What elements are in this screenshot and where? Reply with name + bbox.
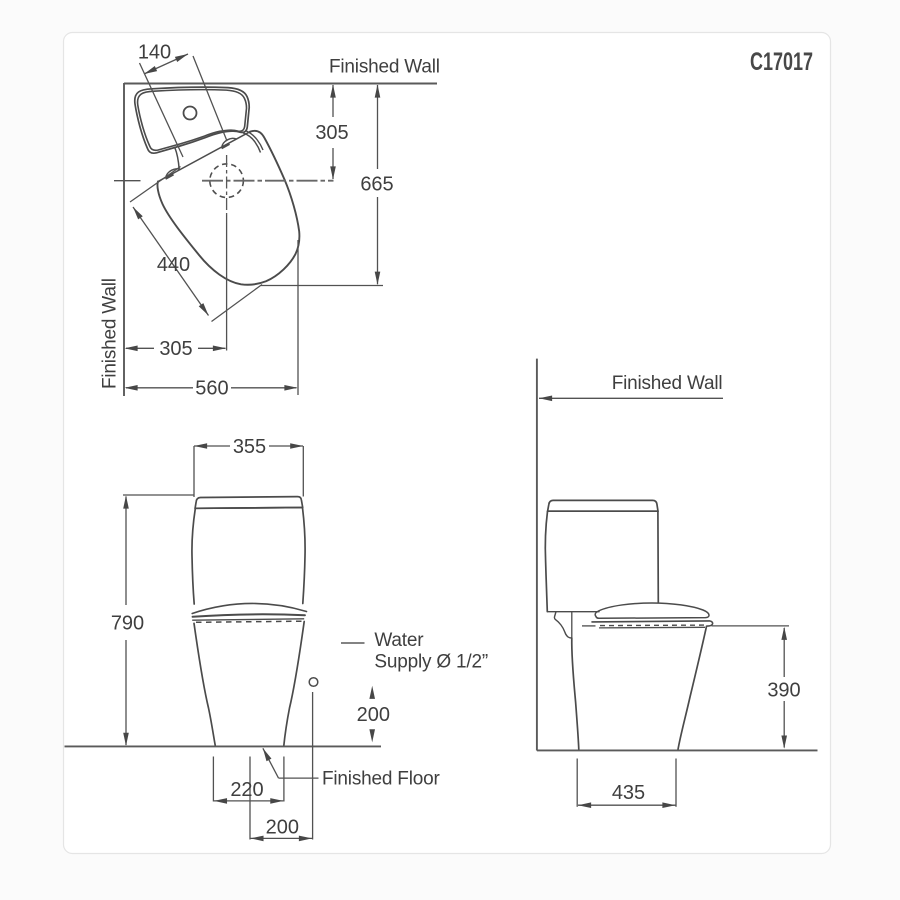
- svg-text:Finished Floor: Finished Floor: [322, 769, 440, 790]
- svg-text:Supply Ø 1/2”: Supply Ø 1/2”: [374, 652, 488, 673]
- svg-text:220: 220: [230, 779, 263, 801]
- svg-text:435: 435: [612, 782, 645, 804]
- svg-text:390: 390: [767, 680, 800, 702]
- svg-text:C17017: C17017: [750, 47, 813, 76]
- svg-text:200: 200: [357, 704, 390, 726]
- svg-text:305: 305: [159, 338, 192, 360]
- svg-text:560: 560: [195, 377, 228, 399]
- svg-text:355: 355: [233, 436, 266, 458]
- svg-text:140: 140: [138, 42, 171, 64]
- svg-text:Finished Wall: Finished Wall: [100, 278, 121, 389]
- svg-text:305: 305: [315, 122, 348, 144]
- svg-text:Water: Water: [374, 630, 424, 651]
- svg-text:Finished Wall: Finished Wall: [329, 57, 440, 78]
- svg-text:440: 440: [157, 254, 190, 276]
- svg-text:665: 665: [360, 173, 393, 195]
- svg-text:790: 790: [111, 613, 144, 635]
- svg-text:Finished Wall: Finished Wall: [612, 373, 723, 394]
- svg-text:200: 200: [266, 817, 299, 839]
